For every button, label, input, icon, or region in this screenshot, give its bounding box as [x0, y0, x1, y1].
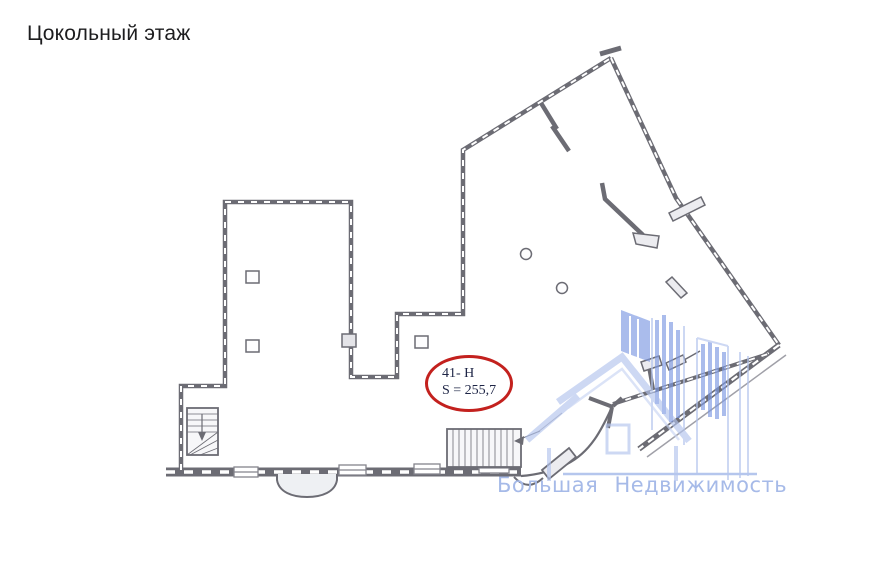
- staircase-bottom: [447, 413, 562, 467]
- column-square: [246, 271, 259, 283]
- unit-annotation: 41- Н S = 255,7: [425, 355, 513, 412]
- center-wall: [602, 183, 643, 235]
- center-wall-foot: [633, 233, 659, 248]
- column-circle: [557, 283, 568, 294]
- staircase-left: [187, 408, 218, 455]
- unit-number: 41- Н: [428, 358, 510, 382]
- wall-left-section: [181, 58, 611, 470]
- unit-area: S = 255,7: [428, 382, 510, 399]
- column-square: [415, 336, 428, 348]
- vertex-cap: [600, 48, 621, 54]
- small-stub-wall: [666, 277, 687, 298]
- corridor-stub: [649, 367, 653, 389]
- bay-window: [277, 474, 337, 497]
- stairs-arrow-leader: [538, 413, 562, 432]
- corridor-rect: [666, 355, 686, 370]
- branch-wall-nw: [541, 103, 569, 151]
- curve-junction: [589, 398, 622, 428]
- interior-walls: [514, 103, 768, 485]
- column-circle: [521, 249, 532, 260]
- wall-pilaster: [342, 334, 356, 347]
- corridor-block: [641, 356, 662, 371]
- watermark-text: Большая Недвижимость: [497, 473, 787, 497]
- columns: [246, 249, 568, 353]
- column-square: [246, 340, 259, 352]
